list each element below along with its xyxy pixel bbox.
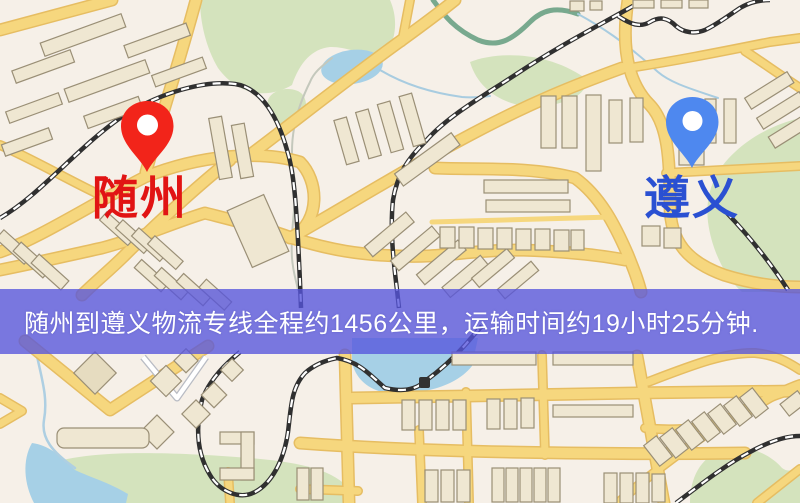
origin-label: 随州 [92,176,188,222]
map-canvas[interactable]: 随州 遵义 随州到遵义物流专线全程约1456公里，运输时间约19小时25分钟. [0,0,800,503]
route-info-text: 随州到遵义物流专线全程约1456公里，运输时间约19小时25分钟. [24,304,759,340]
tunnel-portal [419,377,430,388]
map-art [0,0,800,503]
route-info-banner: 随州到遵义物流专线全程约1456公里，运输时间约19小时25分钟. [0,289,800,354]
destination-label: 遵义 [644,176,740,222]
